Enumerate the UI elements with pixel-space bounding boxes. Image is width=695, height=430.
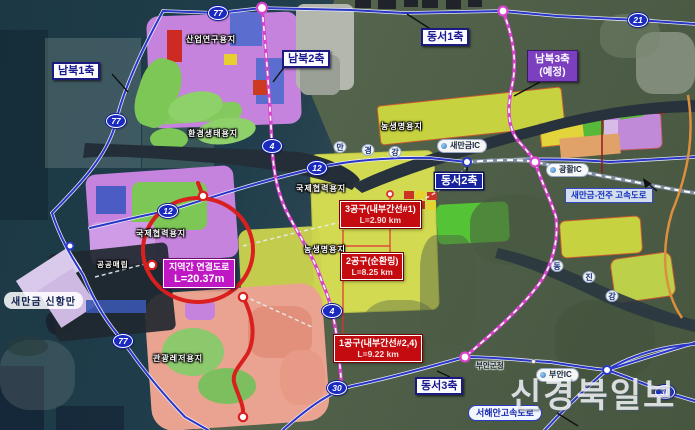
node-pink [461, 353, 470, 362]
route-badge-77: 77 [106, 114, 126, 128]
route-badge-21: 21 [628, 13, 648, 27]
label-saemangeum-jeonju-expressway: 새만금-전주 고속도로 [565, 188, 653, 203]
callout-section3-title: 3공구(내부간선#1) [345, 204, 416, 215]
node-red [148, 261, 156, 269]
node-pink [531, 158, 540, 167]
river-char-mangyeong: 강 [389, 146, 402, 158]
zone-label-eco: 환경생태용지 [188, 128, 238, 139]
buan-office-dot [531, 359, 536, 364]
axis-label-nb3-line1: 남북3축 [535, 53, 570, 66]
ic-label-saemangeum-text: 새만금IC [450, 141, 480, 151]
zone-label-intl: 국제협력용지 [296, 183, 346, 194]
node-pink [257, 3, 267, 13]
route-badge-77: 77 [113, 334, 133, 348]
ic-dot-icon [441, 143, 447, 149]
node-red [239, 413, 247, 421]
road-east-west-1 [163, 8, 695, 24]
callout-section2-length: L=8.25 km [346, 267, 398, 277]
river-char-dongjin: 진 [583, 271, 596, 283]
zone-label-industry: 산업연구용지 [186, 34, 236, 45]
road-orange [665, 95, 690, 318]
river-char-mangyeong: 만 [334, 141, 347, 153]
node-blue [463, 158, 471, 166]
node-red [199, 192, 207, 200]
river-char-dongjin: 동 [551, 260, 564, 272]
leader-nb3 [514, 82, 540, 96]
zone-label-intl: 국제협력용지 [136, 228, 186, 239]
callout-section2: 2공구(순환링) L=8.25 km [341, 253, 403, 280]
leader-nb1 [112, 74, 128, 92]
axis-label-ds1: 동서1축 [421, 28, 469, 46]
callout-regional-road-title: 지역간 연결도로 [169, 262, 229, 273]
route-badge-4: 4 [322, 304, 342, 318]
axis-label-nb2: 남북2축 [282, 50, 330, 68]
axis-label-nb1: 남북1축 [52, 62, 100, 80]
axis-label-ds2: 동서2축 [435, 173, 483, 189]
zone-label-reclaim: 공공매립 [97, 259, 129, 270]
river-char-dongjin: 강 [606, 290, 619, 302]
newspaper-watermark: 신경북일보 [510, 368, 676, 417]
ic-dot-icon [550, 167, 556, 173]
route-badge-77: 77 [208, 6, 228, 20]
axis-label-nb3: 남북3축 (예정) [527, 50, 578, 82]
callout-regional-road: 지역간 연결도로 L=20.37m [163, 259, 235, 288]
route-badge-12: 12 [158, 204, 178, 218]
node-red-small [387, 191, 393, 197]
callout-regional-road-length: L=20.37m [169, 273, 229, 285]
node-blue [67, 243, 74, 250]
node-pink [499, 7, 508, 16]
label-buan-office: 부안군청 [476, 360, 504, 371]
callout-section1-length: L=9.22 km [339, 349, 417, 359]
callout-section3-length: L=2.90 km [345, 215, 416, 225]
callout-section3: 3공구(내부간선#1) L=2.90 km [340, 201, 421, 228]
zone-label-agri: 농생명용지 [304, 244, 346, 255]
route-badge-30: 30 [327, 381, 347, 395]
ic-label-saemangeum: 새만금IC [437, 139, 487, 153]
label-new-port: 새만금 신항만 [4, 292, 83, 309]
ic-label-gwanghwal: 광활IC [546, 163, 589, 177]
leader-nb2 [273, 66, 285, 82]
node-red [239, 293, 247, 301]
zone-label-tourism: 관광레저용지 [153, 353, 203, 364]
road-planned-se [244, 296, 312, 327]
satellite-map: 77 77 77 12 12 4 4 21 30 30 남북1축 남북2축 동서… [0, 0, 695, 430]
axis-label-ds3: 동서3축 [415, 377, 463, 395]
red-route-south [234, 297, 253, 417]
callout-section2-title: 2공구(순환링) [346, 256, 398, 267]
callout-section1-title: 1공구(내부간선#2,4) [339, 338, 417, 349]
river-char-mangyeong: 경 [362, 144, 375, 156]
route-badge-4: 4 [262, 139, 282, 153]
zone-label-agri: 농생명용지 [381, 121, 423, 132]
axis-label-nb3-line2: (예정) [535, 66, 570, 79]
route-badge-12: 12 [307, 161, 327, 175]
ic-label-gwanghwal-text: 광활IC [559, 165, 582, 175]
callout-section1: 1공구(내부간선#2,4) L=9.22 km [334, 335, 422, 362]
